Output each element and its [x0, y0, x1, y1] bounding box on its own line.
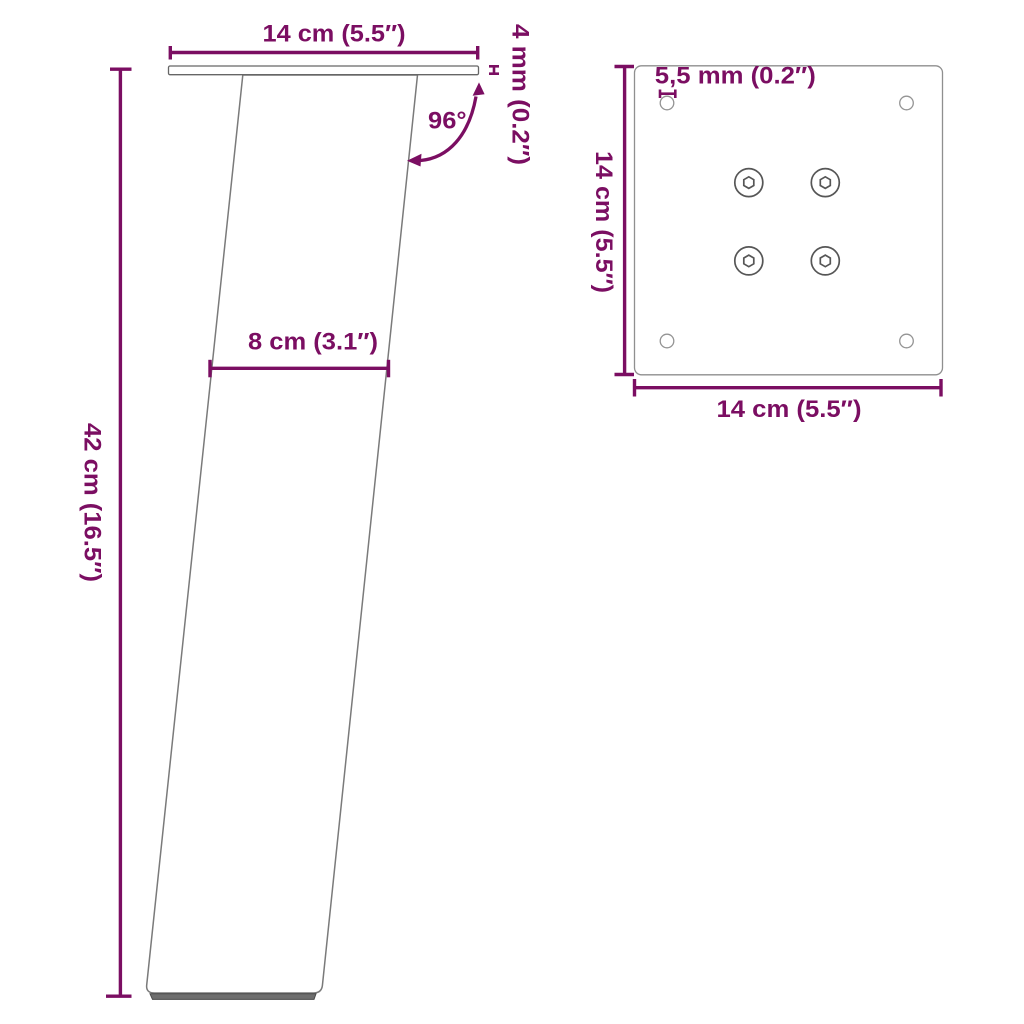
svg-text:96°: 96°: [428, 108, 467, 135]
svg-text:4 mm (0.2″): 4 mm (0.2″): [507, 24, 534, 165]
svg-text:8 cm (3.1″): 8 cm (3.1″): [248, 329, 378, 356]
svg-text:14 cm (5.5″): 14 cm (5.5″): [263, 21, 406, 48]
svg-text:42 cm (16.5″): 42 cm (16.5″): [79, 423, 106, 582]
svg-text:5,5 mm (0.2″): 5,5 mm (0.2″): [655, 63, 816, 90]
svg-text:14 cm (5.5″): 14 cm (5.5″): [717, 396, 862, 423]
svg-text:14 cm (5.5″): 14 cm (5.5″): [590, 151, 617, 293]
